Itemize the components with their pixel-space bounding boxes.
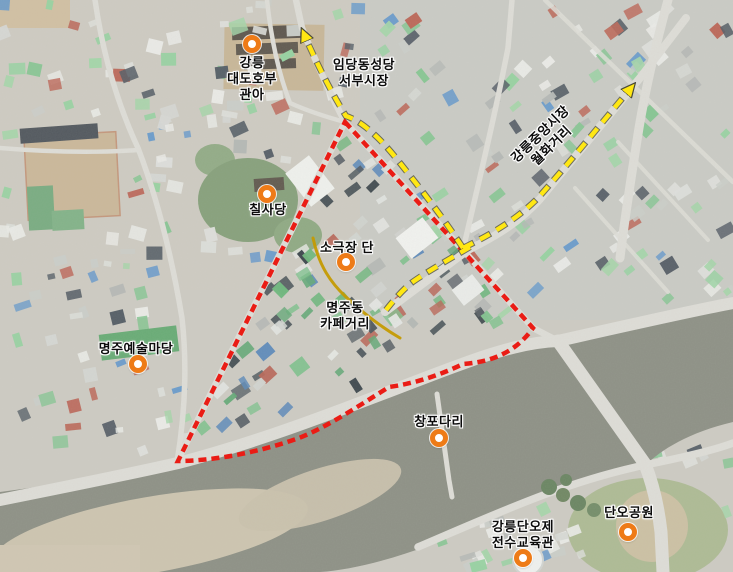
boundary-dashed-line: [178, 122, 533, 461]
cafe-street-line: [313, 238, 400, 338]
route-market-casing: [463, 88, 631, 248]
danoje-education-center-marker[interactable]: [514, 549, 532, 567]
changpo-bridge-marker[interactable]: [430, 429, 448, 447]
route-branch-casing: [386, 247, 470, 310]
gangneung-daedohobu-gwana-marker[interactable]: [243, 35, 261, 53]
myeongju-art-yard-marker[interactable]: [129, 355, 147, 373]
route-overlay: [0, 0, 733, 572]
satellite-map: 강릉대도호부관아임당동성당서부시장칠사당소극장 단명주동카페거리명주예술마당창포…: [0, 0, 733, 572]
route-market-dashed-line: [463, 88, 631, 248]
route-branch-dashed-line: [386, 247, 470, 310]
route-north-dashed-line: [304, 34, 463, 248]
dano-park-marker[interactable]: [619, 523, 637, 541]
sogeukjang-dan-marker[interactable]: [337, 253, 355, 271]
chilsadang-marker[interactable]: [258, 185, 276, 203]
